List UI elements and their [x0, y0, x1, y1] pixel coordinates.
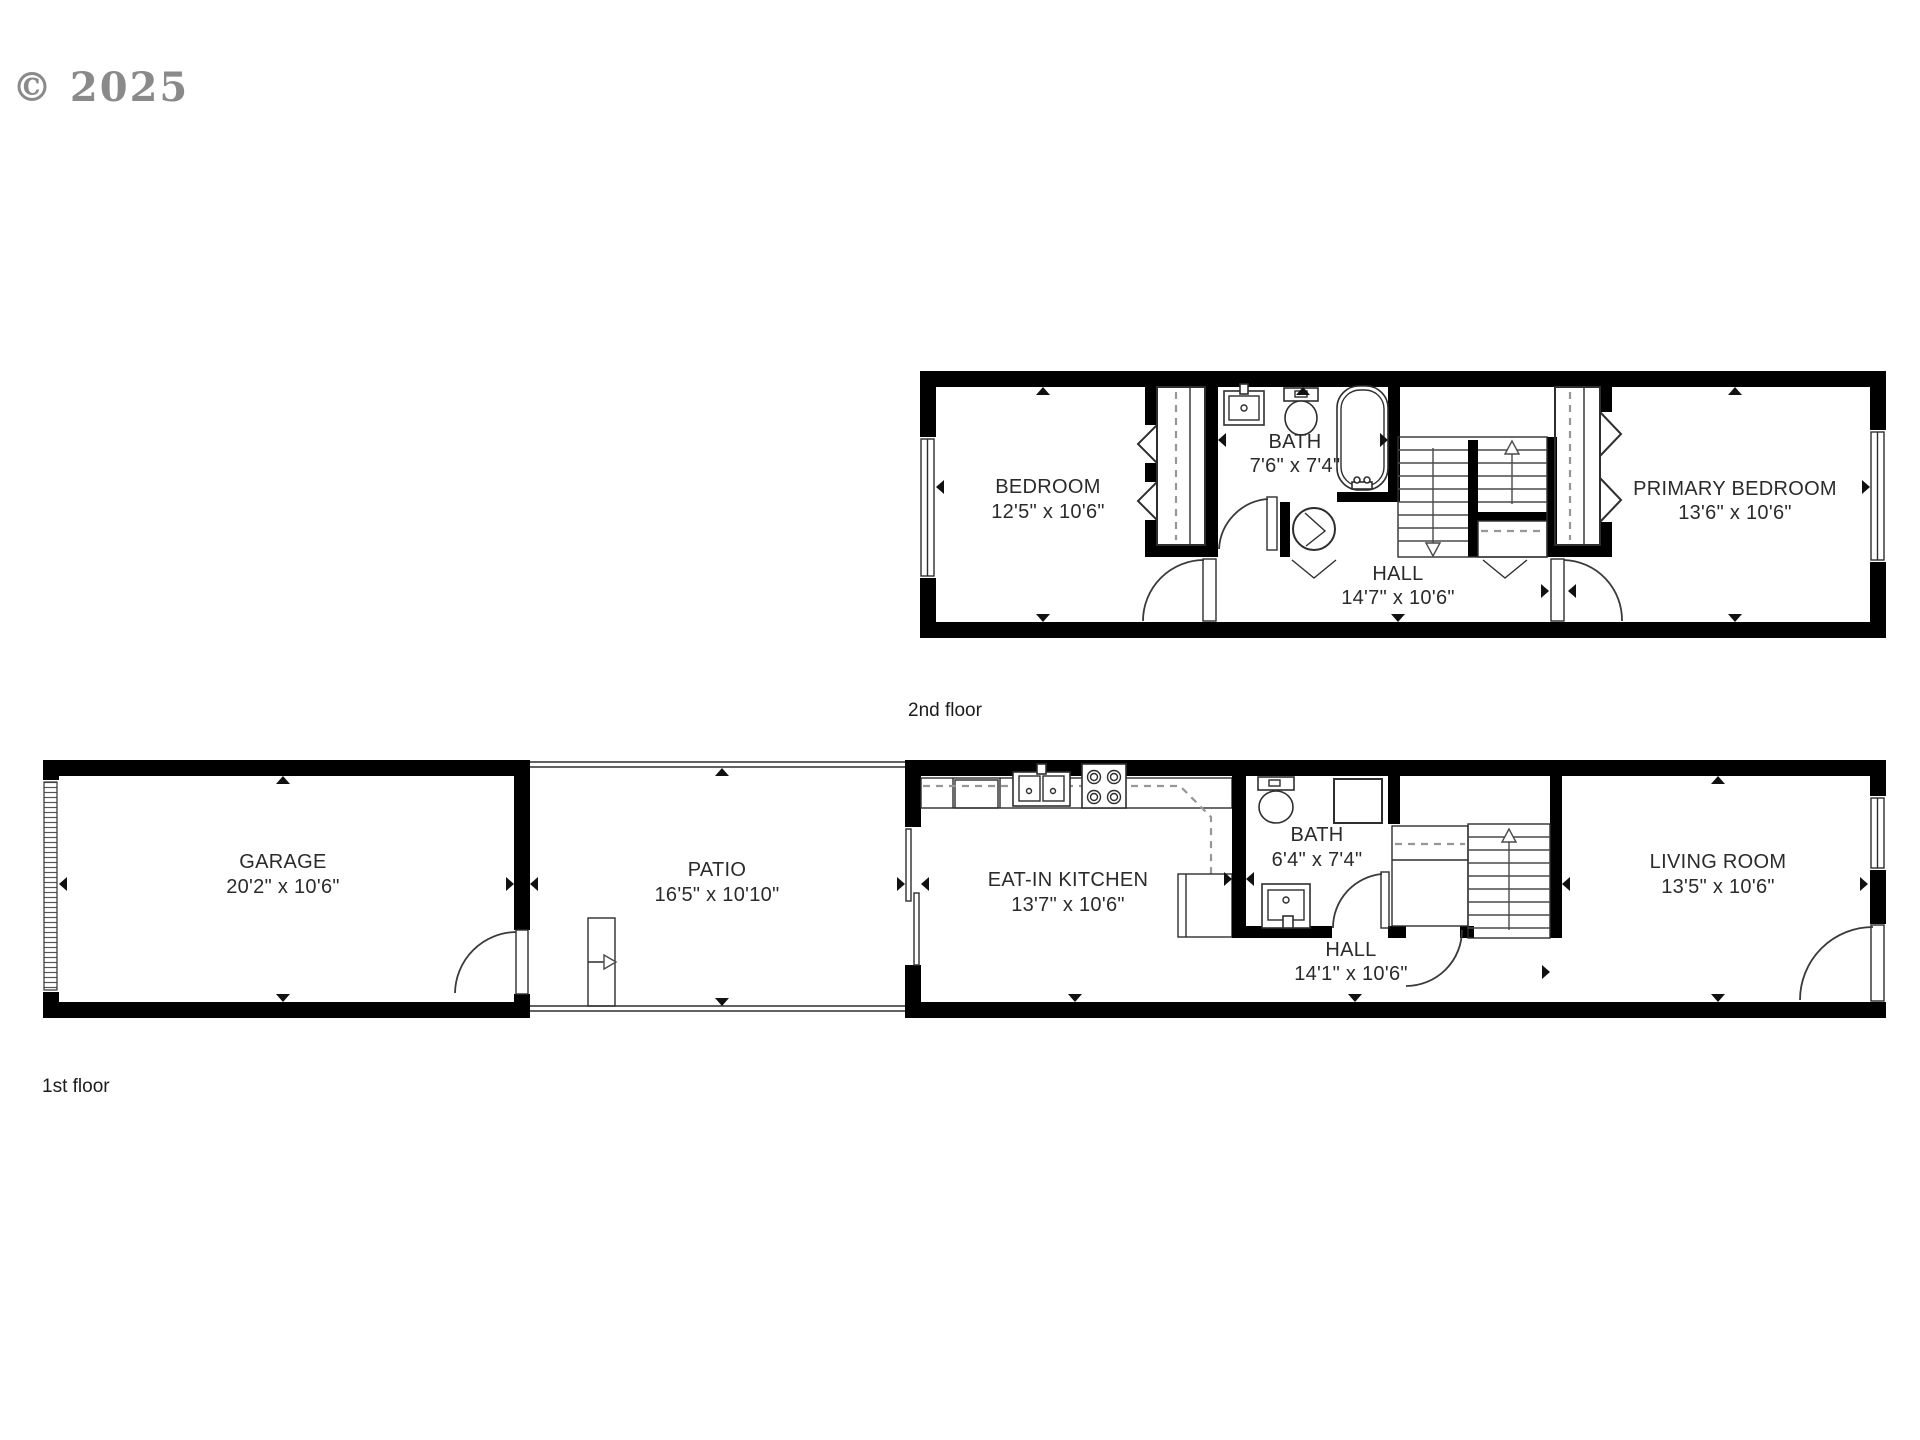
floor-label-1st: 1st floor — [42, 1076, 110, 1097]
stove-icon — [1082, 764, 1126, 808]
window-icon — [1870, 430, 1886, 562]
room-dims-primary-bedroom: 13'6" x 10'6" — [1678, 502, 1792, 524]
room-label-patio: PATIO — [688, 859, 747, 881]
room-label-hall-1st: HALL — [1325, 939, 1376, 961]
window-icon — [1870, 796, 1886, 870]
second-floor-plan: BEDROOM 12'5" x 10'6" BATH 7'6" x 7'4" H… — [908, 371, 1886, 721]
room-dims-hall-1st: 14'1" x 10'6" — [1294, 963, 1408, 985]
floorplan-canvas: © 2025 — [0, 0, 1920, 1440]
room-dims-bath-2nd: 7'6" x 7'4" — [1250, 455, 1341, 477]
room-dims-kitchen: 13'7" x 10'6" — [1011, 894, 1125, 916]
closet — [1392, 826, 1468, 926]
garage-door-icon — [43, 780, 59, 992]
door-bath — [1219, 497, 1277, 550]
room-dims-bedroom: 12'5" x 10'6" — [991, 501, 1105, 523]
room-dims-hall-2nd: 14'7" x 10'6" — [1341, 587, 1455, 609]
front-door — [1800, 924, 1886, 1002]
room-dims-garage: 20'2" x 10'6" — [226, 876, 340, 898]
room-label-bath-2nd: BATH — [1268, 431, 1321, 453]
room-label-living-room: LIVING ROOM — [1650, 851, 1787, 873]
patio-steps — [588, 918, 616, 1006]
room-label-garage: GARAGE — [239, 851, 326, 873]
staircase — [1468, 824, 1550, 938]
window-icon — [920, 437, 936, 578]
bathroom-sink-icon — [1262, 884, 1310, 928]
room-dims-patio: 16'5" x 10'10" — [654, 884, 779, 906]
room-label-bath-1st: BATH — [1290, 824, 1343, 846]
room-label-kitchen: EAT-IN KITCHEN — [988, 869, 1149, 891]
room-label-bedroom: BEDROOM — [995, 476, 1100, 498]
door-closet — [1406, 930, 1462, 986]
water-heater-icon — [1293, 508, 1335, 550]
toilet-icon — [1284, 388, 1318, 435]
door-garage — [455, 930, 528, 994]
door-primary-bedroom — [1551, 559, 1622, 621]
door-bedroom — [1143, 557, 1218, 621]
toilet-icon — [1258, 777, 1294, 823]
shower-icon — [1334, 779, 1382, 823]
bathroom-sink-icon — [1224, 384, 1264, 425]
room-dims-living-room: 13'5" x 10'6" — [1661, 876, 1775, 898]
first-floor-plan: GARAGE 20'2" x 10'6" PATIO 16'5" x 10'10… — [42, 760, 1886, 1097]
door-bath — [1333, 872, 1389, 928]
room-label-hall-2nd: HALL — [1372, 563, 1423, 585]
room-dims-bath-1st: 6'4" x 7'4" — [1272, 849, 1363, 871]
room-label-primary-bedroom: PRIMARY BEDROOM — [1633, 478, 1837, 500]
sliding-door-icon — [906, 829, 919, 965]
floor-label-2nd: 2nd floor — [908, 700, 983, 721]
copyright-watermark: © 2025 — [12, 64, 189, 111]
